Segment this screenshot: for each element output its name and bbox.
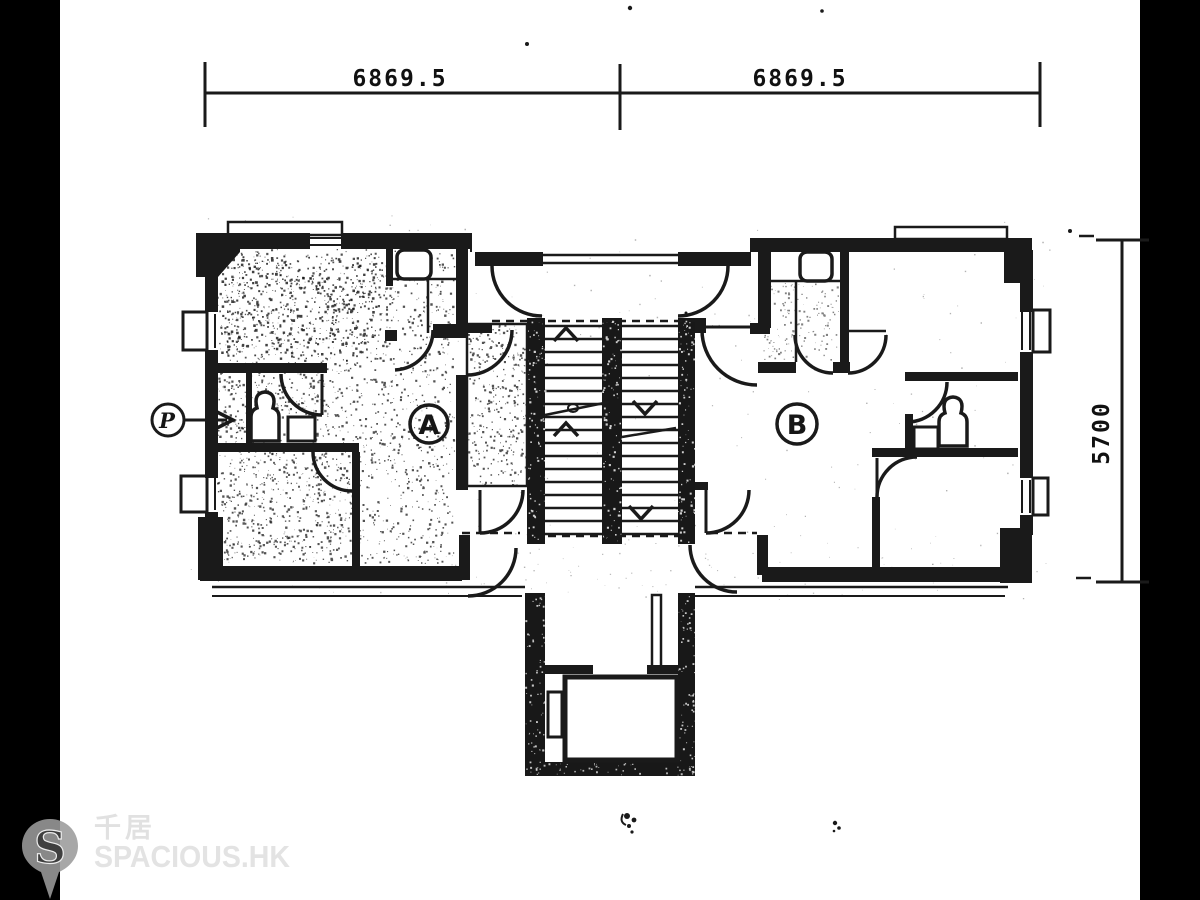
dimension-width-right: 6869.5 [752,66,847,92]
terrace-edge [212,587,1008,596]
porch-door-right [690,545,737,592]
unit-b-toilet [939,397,967,446]
map-pin-icon: S [14,815,86,900]
unit-a-bathroom-door [281,374,322,415]
porch-door-left [468,548,516,596]
floor-plan-svg: 6869.5 6869.5 5700 A B P [0,0,1200,900]
pin-letter: S [34,823,66,874]
unit-a-toilet [251,392,279,441]
unit-b-kitchen-sink [800,252,832,281]
unit-a-basin [288,417,315,441]
unit-a-label: A [419,410,440,441]
dimension-right: 5700 [1068,229,1149,582]
unit-a-kitchen-sink [397,250,431,279]
unit-b-label: B [787,410,808,441]
dimension-height: 5700 [1089,401,1115,464]
brand-english: SPACIOUS.HK [94,841,290,872]
lift-door [548,692,562,737]
unit-b-hall-door [848,335,886,373]
lobby-door-left [492,266,542,316]
unit-b-kitchen-texture [763,283,839,361]
unit-b-bedroom-door [877,457,917,497]
dimension-top: 6869.5 6869.5 [205,62,1040,130]
unit-b-kitchen-door [795,335,833,373]
lift-shaft [212,587,1008,776]
pipe-marker-label: P [158,408,176,433]
unit-b-basin [914,427,938,449]
brand-chinese: 千居 [94,815,307,842]
unit-a-walls [181,222,492,581]
unit-b-entry-door [702,330,757,385]
duct-texture [468,325,528,487]
lobby-door-right [678,266,728,316]
pipe-marker: P [152,404,233,436]
floor-plan-scan: 6869.5 6869.5 5700 A B P [0,0,1200,900]
lift-car [565,677,677,760]
lobby-walls [475,252,751,266]
spacious-watermark: S 千居 SPACIOUS.HK [14,815,307,900]
unit-a-rear-door [480,490,523,533]
unit-b-walls [695,227,1050,583]
unit-b-rear-door [706,490,749,533]
dimension-width-left: 6869.5 [352,66,447,92]
